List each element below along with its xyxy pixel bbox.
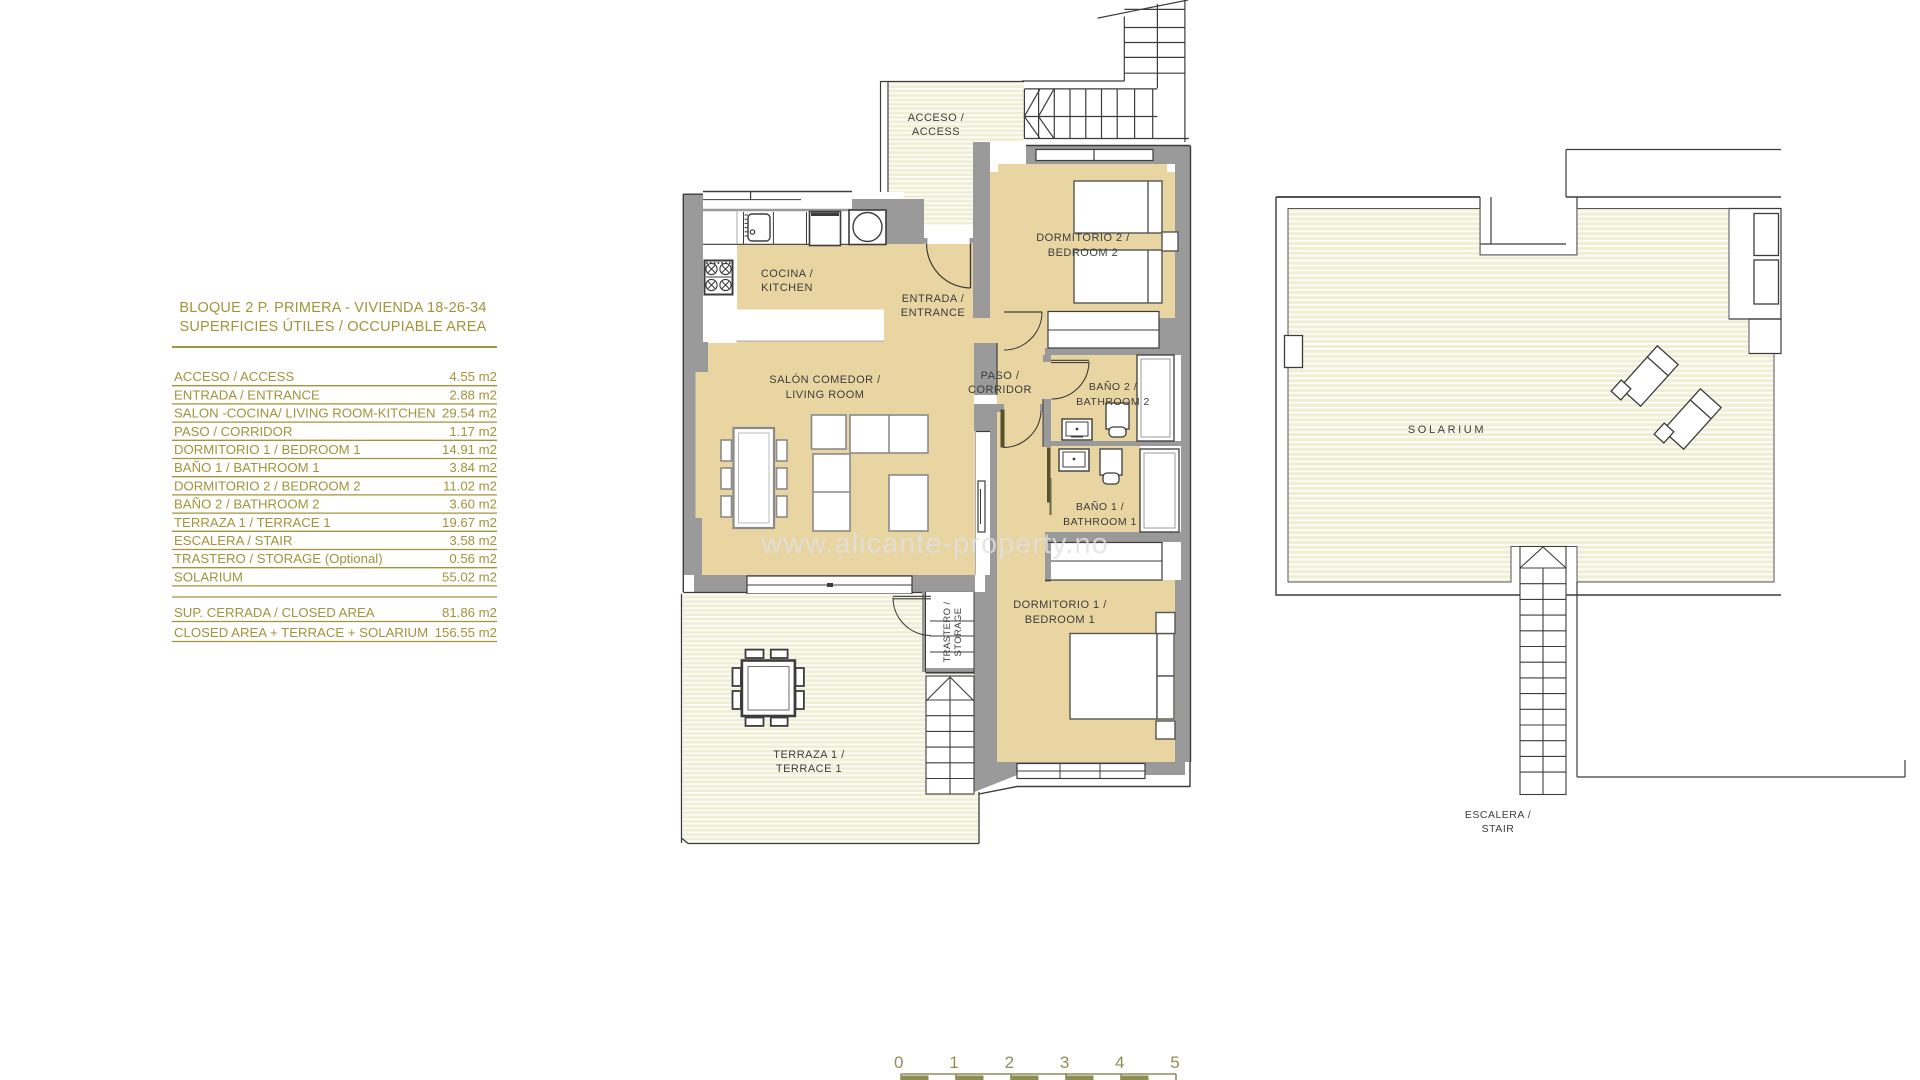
svg-text:19.67 m2: 19.67 m2 [442, 515, 497, 530]
svg-text:156.55 m2: 156.55 m2 [435, 625, 497, 640]
svg-text:PASO / CORRIDOR: PASO / CORRIDOR [174, 424, 292, 439]
svg-text:BATHROOM 2: BATHROOM 2 [1076, 396, 1150, 408]
svg-text:14.91 m2: 14.91 m2 [442, 442, 497, 457]
svg-text:29.54 m2: 29.54 m2 [442, 406, 497, 421]
svg-text:55.02 m2: 55.02 m2 [442, 569, 497, 584]
svg-text:BAÑO 1 /: BAÑO 1 / [1076, 500, 1124, 513]
svg-text:ENTRADA /: ENTRADA / [902, 293, 965, 305]
svg-text:3.60 m2: 3.60 m2 [449, 497, 497, 512]
svg-text:STORAGE: STORAGE [953, 607, 964, 656]
svg-text:ESCALERA / STAIR: ESCALERA / STAIR [174, 533, 292, 548]
svg-text:BAÑO 2 / BATHROOM 2: BAÑO 2 / BATHROOM 2 [174, 497, 320, 512]
svg-text:SALON -COCINA/ LIVING ROOM-KIT: SALON -COCINA/ LIVING ROOM-KITCHEN [174, 406, 436, 421]
svg-text:1: 1 [949, 1053, 959, 1072]
svg-text:DORMITORIO 2 / BEDROOM 2: DORMITORIO 2 / BEDROOM 2 [174, 478, 361, 493]
svg-text:3.84 m2: 3.84 m2 [449, 460, 497, 475]
svg-text:ENTRADA / ENTRANCE: ENTRADA / ENTRANCE [174, 387, 320, 402]
svg-text:BLOQUE 2 P. PRIMERA - VIVIEND: BLOQUE 2 P. PRIMERA - VIVIENDA 18-26-34 [179, 300, 486, 316]
svg-text:DORMITORIO 2 /: DORMITORIO 2 / [1036, 232, 1130, 244]
svg-text:COCINA /: COCINA / [761, 268, 814, 280]
svg-text:ACCESO /: ACCESO / [908, 112, 965, 124]
svg-text:SUPERFICIES ÚTILES / OCCUPIABL: SUPERFICIES ÚTILES / OCCUPIABLE AREA [180, 318, 487, 335]
svg-text:ACCESS: ACCESS [912, 126, 960, 138]
svg-text:3: 3 [1060, 1053, 1070, 1072]
svg-text:2: 2 [1005, 1053, 1015, 1072]
svg-text:5: 5 [1170, 1053, 1180, 1072]
svg-text:11.02 m2: 11.02 m2 [443, 478, 497, 493]
svg-text:0: 0 [894, 1053, 904, 1072]
svg-text:BAÑO 2 /: BAÑO 2 / [1089, 380, 1137, 393]
svg-text:SOLARIUM: SOLARIUM [174, 569, 243, 584]
svg-text:SUP. CERRADA / CLOSED AREA: SUP. CERRADA / CLOSED AREA [174, 605, 375, 620]
svg-text:BEDROOM 1: BEDROOM 1 [1025, 614, 1096, 626]
svg-text:DORMITORIO 1 /: DORMITORIO 1 / [1013, 599, 1107, 611]
svg-text:TERRAZA 1 / TERRACE 1: TERRAZA 1 / TERRACE 1 [174, 515, 331, 530]
svg-text:www.alicante-property.no: www.alicante-property.no [760, 528, 1108, 560]
svg-text:KITCHEN: KITCHEN [761, 282, 813, 294]
svg-text:4: 4 [1115, 1053, 1125, 1072]
svg-text:LIVING ROOM: LIVING ROOM [786, 389, 865, 401]
svg-text:0.56 m2: 0.56 m2 [449, 551, 497, 566]
svg-text:TRASTERO /: TRASTERO / [942, 601, 953, 662]
svg-text:ENTRANCE: ENTRANCE [901, 307, 966, 319]
svg-text:PASO /: PASO / [981, 370, 1020, 382]
svg-text:DORMITORIO 1 / BEDROOM 1: DORMITORIO 1 / BEDROOM 1 [174, 442, 361, 457]
svg-text:4.55 m2: 4.55 m2 [449, 369, 497, 384]
svg-text:TRASTERO / STORAGE (Optional): TRASTERO / STORAGE (Optional) [174, 551, 383, 566]
svg-text:CLOSED AREA + TERRACE + SOLARI: CLOSED AREA + TERRACE + SOLARIUM [174, 625, 428, 640]
svg-text:2.88 m2: 2.88 m2 [449, 387, 497, 402]
svg-text:81.86 m2: 81.86 m2 [442, 605, 497, 620]
svg-text:ESCALERA /: ESCALERA / [1465, 809, 1531, 821]
svg-text:CORRIDOR: CORRIDOR [968, 384, 1032, 396]
svg-text:SALÓN COMEDOR /: SALÓN COMEDOR / [769, 373, 881, 386]
svg-text:STAIR: STAIR [1482, 823, 1515, 835]
svg-text:3.58 m2: 3.58 m2 [449, 533, 497, 548]
svg-text:TERRACE 1: TERRACE 1 [776, 763, 842, 775]
svg-text:SOLARIUM: SOLARIUM [1408, 424, 1486, 436]
svg-text:1.17 m2: 1.17 m2 [449, 424, 497, 439]
svg-text:BAÑO 1 / BATHROOM 1: BAÑO 1 / BATHROOM 1 [174, 460, 320, 475]
svg-text:BEDROOM 2: BEDROOM 2 [1048, 247, 1119, 259]
svg-text:TERRAZA 1 /: TERRAZA 1 / [773, 749, 845, 761]
svg-text:BATHROOM 1: BATHROOM 1 [1063, 516, 1137, 528]
svg-text:ACCESO / ACCESS: ACCESO / ACCESS [174, 369, 294, 384]
